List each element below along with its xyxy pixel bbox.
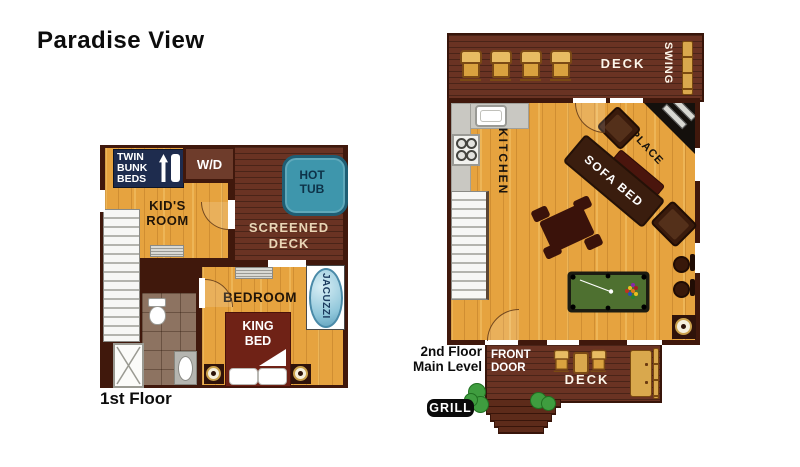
kitchen-sink-icon — [475, 105, 507, 127]
main-level-stairs — [451, 191, 489, 300]
bed-fold-icon — [259, 349, 286, 366]
bathroom-floor — [142, 293, 196, 385]
lamp-center-icon — [298, 371, 303, 376]
bathroom-vanity — [174, 351, 197, 385]
hot-tub-label: HOT TUB — [282, 165, 342, 199]
front-door-label: FRONT DOOR — [491, 349, 531, 375]
pool-table — [567, 271, 650, 313]
rocking-chair-icon — [549, 49, 573, 81]
porch-swing-icon — [682, 41, 693, 95]
king-bed: KING BED — [225, 312, 291, 387]
corner-table — [672, 315, 696, 339]
swing-rail-icon — [653, 348, 659, 399]
porch-swing-icon — [630, 350, 652, 397]
bar-stool-icon — [673, 279, 695, 298]
front-deck-label: DECK — [563, 371, 611, 387]
first-floor-caption: 1st Floor — [100, 389, 172, 409]
dining-set-icon — [532, 198, 602, 258]
bathroom-sink-icon — [178, 356, 193, 381]
upper-deck-label: DECK — [595, 55, 651, 71]
bunk-bed-ladder-icon — [159, 154, 168, 182]
jacuzzi: JACUZZI — [306, 265, 345, 330]
window — [100, 190, 105, 212]
second-floor-caption: 2nd Floor Main Level — [396, 344, 482, 374]
deck-chair-icon — [590, 349, 607, 372]
first-floor-stairs — [103, 209, 140, 342]
grill-label: GRILL — [427, 399, 474, 417]
nightstand — [204, 364, 224, 384]
stove-icon — [452, 134, 480, 166]
screened-deck-floor: HOT TUB SCREENED DECK — [235, 147, 343, 260]
twin-bunk-beds-label: TWIN BUNK BEDS — [117, 152, 147, 185]
toilet-bowl-icon — [149, 306, 166, 325]
rocking-chair-icon — [489, 49, 513, 81]
lamp-center-icon — [211, 371, 216, 376]
rocking-chair-icon — [459, 49, 483, 81]
washer-dryer-box: W/D — [186, 149, 233, 179]
king-bed-label: KING BED — [226, 319, 290, 349]
shower — [113, 343, 144, 388]
bedroom-window — [268, 260, 306, 267]
main-level: FIREPLACE KITCHEN SOFA BED — [447, 98, 700, 345]
upper-deck: DECK SWING — [447, 33, 704, 102]
kitchen-label: KITCHEN — [496, 128, 510, 195]
pillow — [229, 368, 258, 385]
floor-plan-image: Paradise View KID'S ROOM TWIN BUNK BEDS … — [0, 0, 800, 467]
window — [695, 148, 700, 181]
window — [610, 98, 643, 103]
window — [695, 243, 700, 273]
pillow — [258, 368, 287, 385]
page-title: Paradise View — [37, 27, 205, 55]
bunk-bed-icon — [171, 154, 180, 182]
deck-chair-icon — [553, 349, 570, 372]
screened-deck-label: SCREENED DECK — [239, 219, 339, 253]
entry-step — [498, 426, 544, 434]
rocking-chair-icon — [519, 49, 543, 81]
kids-room-label: KID'S ROOM — [130, 197, 205, 229]
first-floor-plan: KID'S ROOM TWIN BUNK BEDS W/D HOT TUB SC… — [100, 145, 348, 388]
kids-room-vent — [150, 245, 184, 257]
swing-label: SWING — [662, 42, 674, 84]
nightstand — [291, 364, 311, 384]
twin-bunk-beds-box: TWIN BUNK BEDS — [113, 149, 184, 188]
shower-door-icon — [115, 345, 142, 386]
jacuzzi-label: JACUZZI — [320, 273, 331, 319]
bush-icon — [541, 396, 556, 411]
front-deck: FRONT DOOR DECK — [485, 345, 662, 403]
kids-room-door-gap — [228, 200, 235, 229]
bar-stool-icon — [673, 254, 695, 271]
lamp-center-icon — [681, 324, 686, 329]
bedroom-vent — [235, 267, 273, 279]
